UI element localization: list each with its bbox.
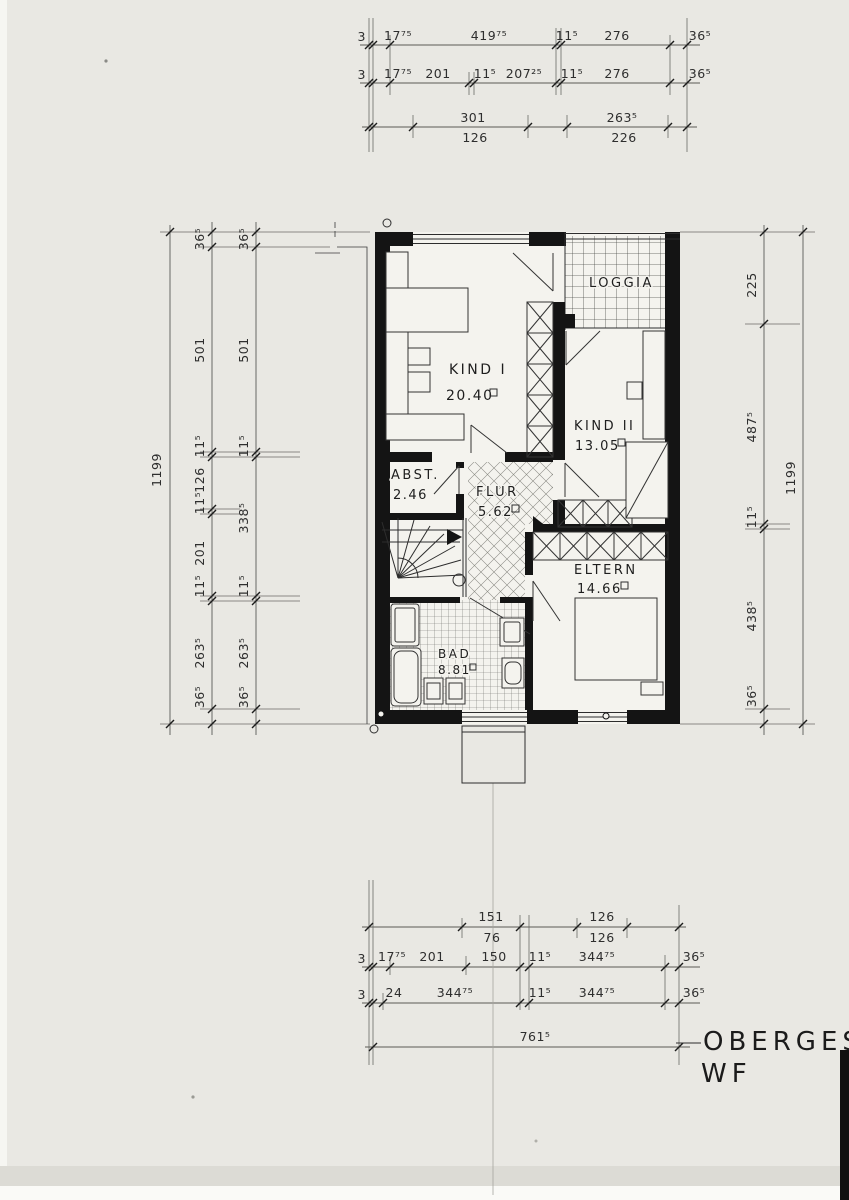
- room-area-flur: 5.62: [478, 505, 513, 520]
- dim-label: 17⁷⁵: [384, 28, 412, 43]
- dim-label: 501: [236, 337, 251, 362]
- dim-label: 24: [386, 985, 403, 1000]
- dim-label: 36⁵: [236, 228, 251, 250]
- balcony-below: [462, 726, 525, 783]
- dim-label: 11⁵: [529, 949, 551, 964]
- dim-label: 11⁵: [192, 492, 207, 514]
- dim-label: 3: [358, 67, 366, 82]
- right-dimension-block: 225 487⁵ 11⁵ 438⁵ 36⁵ 1199: [680, 225, 815, 735]
- dim-label: 11⁵: [529, 985, 551, 1000]
- dim-label: 226: [611, 130, 636, 145]
- dim-label: 76: [484, 930, 501, 945]
- floor-plan-drawing: 3 17⁷⁵ 419⁷⁵ 11⁵ 276 36⁵ 3 17⁷⁵ 201 11⁵ …: [0, 0, 849, 1200]
- dim-label: 1199: [783, 461, 798, 495]
- room-area-eltern: 14.66: [577, 582, 622, 597]
- dim-label: 126: [589, 909, 614, 924]
- dim-label: 36⁵: [192, 228, 207, 250]
- bed: [575, 598, 657, 680]
- dim-label: 263⁵: [192, 638, 207, 669]
- dim-label: 344⁷⁵: [579, 949, 615, 964]
- room-label-loggia: LOGGIA: [589, 276, 654, 291]
- dim-label: 201: [192, 540, 207, 565]
- dim-label: 761⁵: [520, 1029, 551, 1044]
- dim-label: 344⁷⁵: [579, 985, 615, 1000]
- room-area-kind2: 13.05: [575, 439, 620, 454]
- dim-label: 36⁵: [689, 66, 711, 81]
- dim-label: 1199: [149, 453, 164, 487]
- dim-label: 11⁵: [192, 435, 207, 457]
- dim-label: 263⁵: [236, 638, 251, 669]
- dim-label: 36⁵: [236, 686, 251, 708]
- dim-label: 126: [589, 930, 614, 945]
- dim-label: 501: [192, 337, 207, 362]
- dim-label: 11⁵: [236, 435, 251, 457]
- room-label-flur: FLUR: [476, 485, 519, 500]
- dim-label: 487⁵: [744, 412, 759, 443]
- dim-label: 151: [478, 909, 503, 924]
- dim-label: 3: [358, 987, 366, 1002]
- scanned-floor-plan-sheet: 3 17⁷⁵ 419⁷⁵ 11⁵ 276 36⁵ 3 17⁷⁵ 201 11⁵ …: [0, 0, 849, 1200]
- dim-label: 17⁷⁵: [378, 949, 406, 964]
- dim-label: 36⁵: [689, 28, 711, 43]
- dim-label: 126: [192, 467, 207, 492]
- neighbour-outline: [337, 247, 367, 724]
- room-label-eltern: ELTERN: [574, 563, 638, 578]
- bottom-dimension-block: 151 126 76 126 3 17⁷⁵ 201 150 11⁵ 344⁷⁵ …: [358, 783, 706, 1195]
- dim-label: 201: [419, 949, 444, 964]
- dim-label: 338⁵: [236, 503, 251, 534]
- survey-point-bottom: [370, 725, 378, 733]
- floor-plan: LOGGIA KIND I 20.40 KIND II 13.05 ABST. …: [315, 219, 680, 783]
- scan-edge-bar: [840, 1050, 849, 1200]
- dim-label: 36⁵: [744, 685, 759, 707]
- sheet-subtitle: WF: [701, 1059, 752, 1089]
- dim-label: 438⁵: [744, 601, 759, 632]
- survey-point-top: [383, 219, 391, 227]
- dim-label: 419⁷⁵: [471, 28, 507, 43]
- dim-label: 201: [425, 66, 450, 81]
- dim-label: 225: [744, 272, 759, 297]
- dim-label: 36⁵: [683, 985, 705, 1000]
- dim-label: 11⁵: [474, 66, 496, 81]
- dim-label: 3: [358, 29, 366, 44]
- sheet-title: OBERGESC: [703, 1027, 849, 1057]
- dim-label: 301: [460, 110, 485, 125]
- dim-label: 126: [462, 130, 487, 145]
- dim-label: 11⁵: [236, 575, 251, 597]
- room-area-kind1: 20.40: [446, 388, 494, 404]
- dim-label: 150: [481, 949, 506, 964]
- dim-label: 276: [604, 66, 629, 81]
- dim-label: 3: [358, 951, 366, 966]
- room-area-bad: 8.81: [438, 663, 471, 677]
- dim-label: 11⁵: [744, 506, 759, 528]
- dim-label: 36⁵: [683, 949, 705, 964]
- dim-label: 11⁵: [192, 575, 207, 597]
- dim-label: 263⁵: [607, 110, 638, 125]
- room-label-kind2: KIND II: [574, 419, 635, 434]
- title-block: OBERGESC WF: [676, 1027, 849, 1089]
- room-label-abst: ABST.: [391, 468, 440, 483]
- room-label-bad: BAD: [438, 647, 471, 661]
- room-label-kind1: KIND I: [449, 362, 507, 378]
- left-dimension-block: 1199 36⁵ 501 11⁵ 126 11⁵ 201 11⁵ 263⁵ 36…: [149, 222, 370, 735]
- room-area-abst: 2.46: [393, 488, 428, 503]
- dim-label: 344⁷⁵: [437, 985, 473, 1000]
- dim-label: 11⁵: [556, 28, 578, 43]
- dim-label: 11⁵: [561, 66, 583, 81]
- top-dimension-block: 3 17⁷⁵ 419⁷⁵ 11⁵ 276 36⁵ 3 17⁷⁵ 201 11⁵ …: [358, 18, 712, 152]
- dim-label: 276: [604, 28, 629, 43]
- dim-label: 36⁵: [192, 686, 207, 708]
- dim-label: 207²⁵: [506, 66, 542, 81]
- dim-label: 17⁷⁵: [384, 66, 412, 81]
